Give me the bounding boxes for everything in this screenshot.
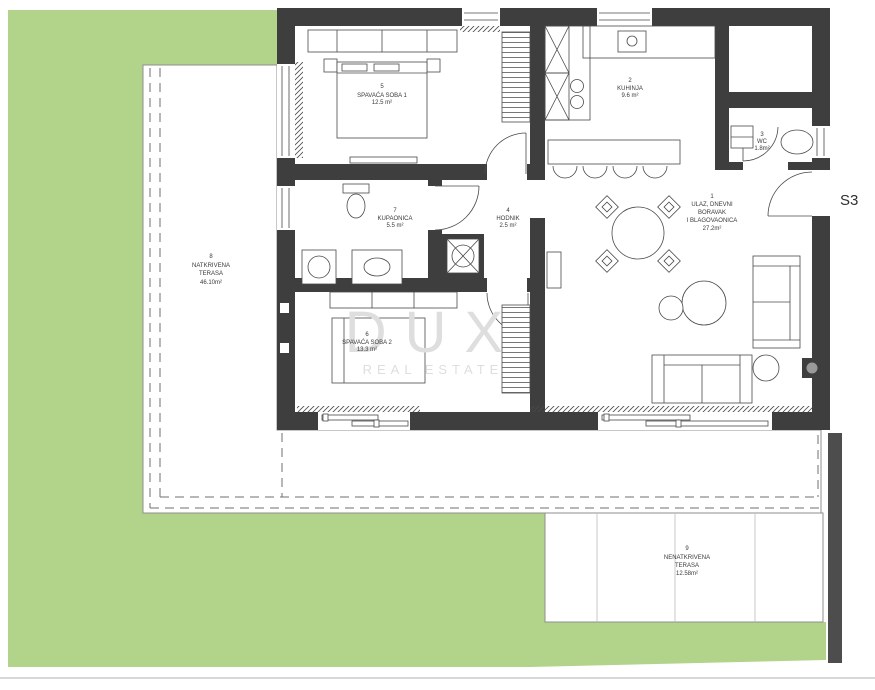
dining-chair [596, 196, 619, 219]
wall-living-bedrooms [530, 218, 545, 412]
room-label-bathroom: 7 KUPAONICA 5.5 m² [378, 208, 413, 229]
window-kitchen-north [597, 8, 652, 26]
room-name-line: NATKRIVENA [192, 263, 230, 269]
door-entrance [768, 172, 812, 216]
room-name-line: NENATKRIVENA [664, 555, 710, 561]
room-number: 3 [760, 132, 764, 138]
room-area: 2.5 m² [499, 223, 516, 229]
hallway-shaft [442, 234, 484, 278]
entrance-opening [812, 170, 830, 216]
counter-top [583, 26, 715, 58]
room-label-hallway: 4 HODNIK 2.5 m² [496, 208, 519, 229]
shelf-radiator [502, 32, 530, 122]
wall-niche [280, 343, 289, 353]
room-area: 13.3 m² [357, 347, 377, 353]
bar-stool [553, 166, 577, 178]
room-number: 7 [393, 208, 397, 214]
dining-chair [658, 250, 681, 273]
vanity [352, 250, 402, 284]
washing-machine [302, 250, 336, 284]
room-label-wc: 3 WC 1.8m² [754, 132, 769, 152]
unit-label: S3 [840, 192, 858, 209]
room-name-line: TERASA [675, 563, 699, 569]
window-bedroom1-north [462, 8, 500, 26]
toilet-bowl [347, 194, 365, 218]
insulation-hatch [295, 62, 303, 158]
room-label-kitchen: 2 KUHINJA 9.6 m² [617, 78, 643, 99]
wall-kitchen-wc [715, 26, 729, 170]
wall-bedroom1-kitchen [530, 26, 545, 176]
entry-console [547, 252, 561, 288]
room-number: 2 [628, 78, 632, 84]
window-bedroom1-west [277, 64, 295, 158]
sink-basin [571, 80, 584, 93]
floor-plan-page: DUX REAL ESTATE 5 SPAVAĆA SOBA 1 12.5 m²… [0, 0, 875, 690]
coffee-table-small [659, 296, 683, 320]
room-name: KUHINJA [617, 86, 643, 92]
bar-stool [643, 166, 667, 178]
wall-wc-north [729, 92, 812, 108]
sliding-door-living [598, 412, 772, 430]
boundary-fence [828, 433, 842, 663]
door-bedroom1 [485, 133, 526, 174]
sink-basin [571, 96, 584, 109]
insulation-hatch [530, 406, 812, 412]
watermark: DUX REAL ESTATE [345, 300, 521, 377]
kitchen-furniture [545, 26, 715, 178]
kitchen-island [548, 140, 680, 164]
room-label-living: 1 ULAZ, DNEVNI BORAVAK I BLAGOVAONICA 27… [687, 194, 738, 232]
insulation-hatch [460, 26, 500, 32]
room-name: SPAVAĆA SOBA 1 [357, 92, 407, 99]
dining-chair [658, 196, 681, 219]
room-number: 1 [710, 194, 714, 200]
insulation-hatch [297, 406, 420, 412]
fireplace-flue [807, 363, 818, 374]
bedroom1-furniture [308, 30, 530, 163]
wall-wc-south-left [729, 162, 743, 170]
room-name: KUPAONICA [378, 216, 413, 222]
wall-wc-south-right [788, 162, 812, 170]
bench [350, 157, 417, 163]
room-name-line: I BLAGOVAONICA [687, 218, 738, 224]
coffee-table [682, 281, 726, 325]
wall-north [277, 8, 830, 26]
dining-chair [596, 250, 619, 273]
nightstand [324, 59, 337, 72]
room-area: 9.6 m² [621, 93, 638, 99]
watermark-brand: DUX [345, 300, 521, 365]
room-name: WC [757, 139, 768, 145]
wall-bath-hall-top [428, 180, 442, 186]
room-name-line: BORAVAK [698, 210, 726, 216]
dining-table [612, 207, 664, 259]
window-wc-east [812, 126, 830, 158]
room-area: 46.10m² [200, 280, 222, 286]
dining-set [596, 196, 681, 273]
side-table [753, 355, 779, 381]
sliding-door-bedroom2 [318, 412, 410, 430]
nightstand [427, 59, 440, 72]
room-name: SPAVAĆA SOBA 2 [342, 339, 392, 346]
wall-bedroom1-bath [295, 164, 487, 180]
living-furniture [547, 252, 822, 403]
window-bathroom-west [277, 186, 295, 230]
door-bathroom [435, 186, 479, 230]
wardrobe [308, 30, 457, 52]
wall-niche [280, 303, 289, 313]
cooktop [618, 31, 646, 52]
wall-bath-hall-bottom [428, 230, 442, 278]
room-area: 1.8m² [754, 146, 769, 152]
bar-stool [613, 166, 637, 178]
wall-hall-bedroom2 [527, 278, 545, 292]
room-name-line: ULAZ, DNEVNI [691, 202, 733, 208]
tub [781, 130, 813, 154]
floor-plan-drawing: DUX REAL ESTATE 5 SPAVAĆA SOBA 1 12.5 m²… [0, 0, 875, 690]
wall-bedroom1-hall [527, 164, 545, 180]
room-name: HODNIK [496, 216, 519, 222]
room-area: 5.5 m² [386, 223, 403, 229]
toilet-tank [343, 184, 369, 193]
room-name-line: TERASA [199, 271, 223, 277]
bathroom-fixtures [302, 184, 402, 284]
room-area: 12.5 m² [372, 100, 392, 106]
watermark-tagline: REAL ESTATE [363, 362, 504, 377]
room-area: 12.58m² [676, 571, 698, 577]
room-number: 4 [506, 208, 510, 214]
bar-stool [583, 166, 607, 178]
room-area: 27.2m² [703, 226, 722, 232]
